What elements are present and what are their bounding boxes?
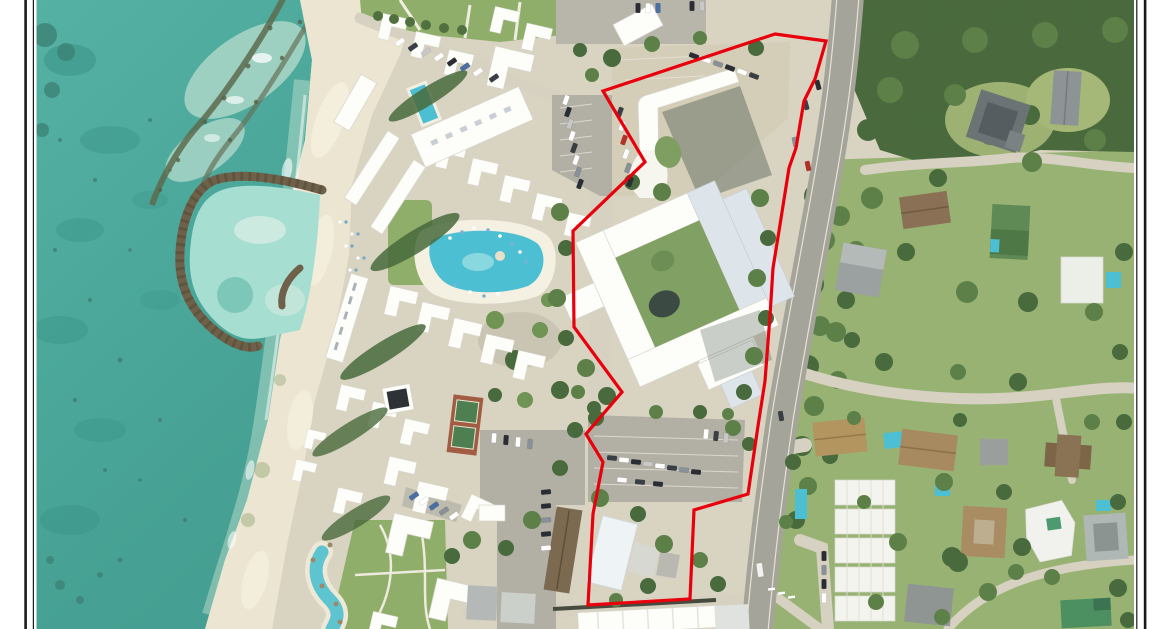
house-teal-roof	[1060, 598, 1111, 629]
photo-area	[32, 0, 1137, 629]
swimming-pool	[1096, 500, 1111, 511]
house	[835, 243, 887, 298]
frame-line-left-outer	[24, 0, 27, 629]
house	[1083, 513, 1128, 562]
document-page	[0, 0, 1175, 629]
frame-line-right-outer	[1144, 0, 1147, 629]
house	[1050, 70, 1082, 126]
house	[898, 429, 958, 472]
house	[812, 417, 867, 456]
aerial-site-photo	[0, 0, 1175, 629]
swimming-pool	[795, 489, 807, 519]
house-green-roof	[990, 204, 1031, 260]
frame-line-right-inner	[1136, 0, 1137, 629]
house	[980, 439, 1008, 465]
house	[961, 506, 1008, 558]
house	[899, 191, 951, 229]
frame-line-left-inner	[33, 0, 34, 629]
